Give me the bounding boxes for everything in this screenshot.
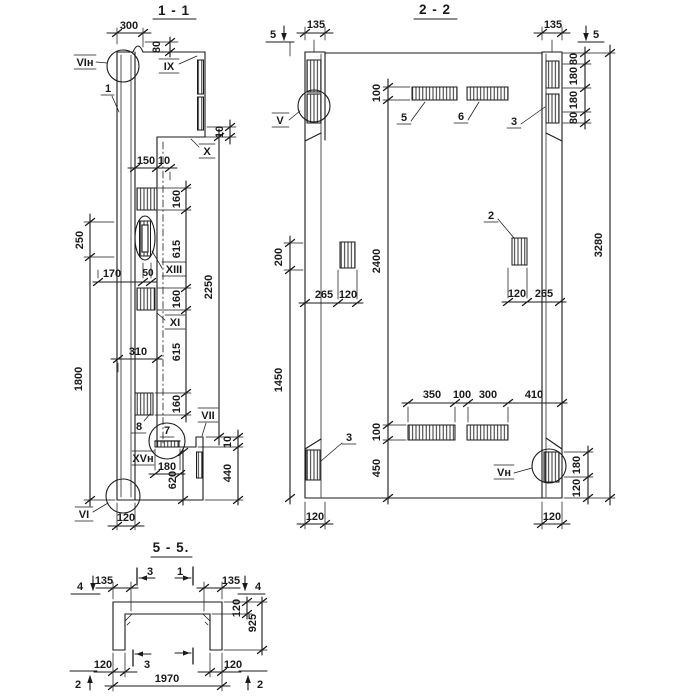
dim-text: 160: [171, 395, 183, 413]
embedded-plate: [137, 188, 157, 210]
dim-135-right: 135: [534, 19, 570, 40]
callout-3-bottom: 3: [321, 432, 356, 461]
cut-marker-text: 3: [147, 566, 153, 578]
dim-text: 135: [307, 19, 325, 31]
detail-label-v: V: [272, 111, 300, 127]
embedded-plate: [197, 452, 203, 478]
dim-text: 300: [120, 20, 138, 32]
cut-marker-2-right: 2: [239, 671, 267, 691]
dim-300: 300: [107, 20, 151, 47]
dim-text: 250: [74, 231, 86, 249]
cut-marker-text: 2: [75, 679, 81, 691]
callout-3-top: 3: [507, 107, 545, 128]
section-2-2-title: 2 - 2: [414, 2, 457, 19]
embedded-plate: [512, 238, 527, 265]
dim-135-top-left: 135: [95, 575, 138, 611]
cut-marker-text: 5: [593, 29, 599, 41]
embedded-plate: [306, 450, 320, 480]
callout-6: 6: [454, 102, 479, 123]
dim-text: 120: [94, 659, 112, 671]
cut-marker-3-bottom: 3: [133, 650, 151, 671]
detail-label-vii-text: VII: [201, 410, 214, 422]
detail-label-ix: IX: [159, 56, 197, 73]
detail-label-x: X: [191, 139, 215, 158]
embedded-angle: [155, 441, 179, 447]
embedded-plate: [467, 87, 508, 100]
dim-120-bottom: 120: [108, 503, 144, 530]
dim-text: 615: [171, 240, 183, 258]
dim-text: 440: [222, 464, 234, 482]
dim-text: 620: [167, 471, 179, 489]
embedded-plate: [412, 87, 457, 100]
dim-text: 3280: [593, 233, 605, 257]
dim-120-bottom-right: 120: [198, 653, 242, 677]
dim-text: 160: [171, 190, 183, 208]
embedded-plate: [544, 452, 559, 482]
dim-text: 135: [544, 19, 562, 31]
dim-text: 120: [339, 289, 357, 301]
callout-5-text: 5: [401, 112, 407, 124]
dim-620: 620: [167, 449, 188, 506]
dim-text: 180: [571, 456, 583, 474]
dim-250-1800: 250 1800: [73, 214, 115, 506]
channel-cross-section: [113, 602, 222, 650]
dim-text: 135: [95, 575, 113, 587]
slot-inner: [142, 225, 148, 252]
dim-200-1450: 200 1450: [273, 236, 303, 504]
dim-text: 615: [171, 343, 183, 361]
section-1-1-title-text: 1 - 1: [158, 3, 190, 18]
callout-7-text: 7: [164, 425, 170, 437]
embedded-plate: [546, 61, 559, 88]
dim-135-left: 135: [297, 19, 333, 40]
detail-label-ix-text: IX: [164, 61, 175, 73]
callout-6-text: 6: [458, 111, 464, 123]
cut-marker-text: 1: [177, 566, 183, 578]
dim-text: 120: [571, 479, 583, 497]
callout-2-text: 2: [488, 210, 494, 222]
dim-text: 135: [222, 575, 240, 587]
callout-1-text: 1: [105, 83, 111, 95]
dim-1970: 1970: [105, 673, 230, 691]
dim-text: 2400: [371, 249, 383, 273]
section-5-5: 5 - 5. 4 4 3 1 3 2: [70, 540, 267, 691]
dim-text: 180: [568, 91, 580, 109]
dim-text: 100: [371, 84, 383, 102]
cut-marker-3-top: 3: [137, 566, 155, 585]
dim-text: 120: [117, 512, 135, 524]
dim-chain-right-top: 80 180 180 80: [563, 47, 591, 129]
detail-label-vin-text: VIн: [76, 57, 93, 69]
dim-310: 310: [111, 346, 162, 372]
dim-120-bottom-right: 120: [534, 502, 570, 529]
dim-170-50: 170 50: [93, 263, 157, 286]
embedded-plate: [546, 94, 559, 123]
embedded-plate: [340, 242, 355, 268]
detail-circle-vin: [107, 50, 139, 82]
dim-chain-right-inner: 160 615 160 615 160: [155, 181, 191, 422]
rib-elevation-outline: [117, 46, 205, 500]
dim-text: 170: [103, 268, 121, 280]
detail-label-xvn-text: XVн: [132, 453, 153, 465]
embedded-plate: [198, 60, 204, 94]
callout-1: 1: [101, 83, 119, 112]
technical-drawing: 1 - 1: [0, 0, 700, 700]
detail-label-vii: VII: [198, 408, 218, 436]
dim-text: 1970: [155, 673, 179, 685]
dim-text: 120: [543, 511, 561, 523]
dim-265-120-left: 265 120: [299, 270, 363, 307]
dim-text: 1450: [273, 368, 285, 392]
embedded-plate: [467, 425, 508, 440]
dim-text: 265: [535, 288, 553, 300]
dim-120-bottom-left: 120: [94, 653, 137, 677]
detail-label-x-text: X: [203, 146, 211, 158]
detail-label-xi: XI: [157, 313, 185, 329]
cut-marker-text: 4: [77, 581, 84, 593]
blueprint-page: 1 - 1: [0, 0, 700, 700]
dim-text: 120: [306, 511, 324, 523]
dim-text: 10: [158, 155, 170, 167]
detail-label-vn-text: Vн: [497, 467, 511, 479]
dim-text: 200: [273, 248, 285, 266]
callout-5: 5: [397, 102, 425, 124]
section-5-5-title-text: 5 - 5.: [153, 540, 190, 555]
callout-8-text: 8: [136, 421, 142, 433]
cut-marker-5-left: 5: [266, 26, 294, 56]
embedded-plate: [135, 393, 153, 415]
detail-label-vi-text: VI: [79, 509, 89, 521]
dim-chain-center: 100 2400 100 450: [371, 79, 410, 504]
callout-2: 2: [484, 210, 514, 238]
dim-80: 80: [145, 37, 178, 57]
cut-marker-bottom-right-flag: [175, 648, 193, 664]
section-2-2-title-text: 2 - 2: [419, 2, 451, 17]
cut-marker-text: 4: [255, 581, 262, 593]
dim-text: 50: [142, 268, 154, 279]
dim-text: 410: [525, 389, 543, 401]
cut-marker-text: 3: [144, 659, 150, 671]
detail-label-xi-text: XI: [170, 317, 180, 329]
cut-marker-4-right: 4: [238, 576, 265, 594]
dim-180-120-right-bottom: 180 120: [564, 446, 593, 504]
dim-text: 925: [247, 614, 259, 632]
dim-text: 180: [568, 67, 580, 85]
detail-label-xvn: XVн: [132, 451, 154, 465]
dim-text: 2250: [203, 275, 215, 299]
section-1-1-title: 1 - 1: [153, 3, 196, 19]
dim-text: 150: [137, 155, 155, 167]
detail-label-v-text: V: [276, 115, 284, 127]
embedded-plates-2-2: [306, 60, 559, 482]
dim-text: 100: [371, 423, 383, 441]
detail-label-vi: VI: [75, 503, 108, 521]
callout-3-text: 3: [346, 432, 352, 444]
dim-120-265-right: 120 265: [502, 268, 566, 306]
dim-text: 350: [423, 389, 441, 401]
callout-3-text: 3: [511, 116, 517, 128]
dim-text: 120: [231, 599, 243, 617]
section-1-1: 1 - 1: [73, 3, 243, 530]
dim-text: 100: [453, 389, 471, 401]
lifting-loop: [133, 46, 143, 52]
dim-text: 265: [315, 289, 333, 301]
dim-10-top-right: 10: [205, 120, 236, 144]
dim-text: 80: [568, 112, 580, 124]
dim-text: 450: [371, 459, 383, 477]
callout-7: 7: [160, 425, 174, 437]
embedded-plate: [408, 425, 455, 440]
dim-10-440: 10 440: [198, 430, 243, 505]
detail-label-xiii-text: XIII: [166, 264, 183, 276]
dim-text: 120: [224, 659, 242, 671]
dim-text: 80: [151, 41, 163, 53]
dim-text: 160: [171, 290, 183, 308]
section-2-2: 2 - 2: [266, 2, 615, 529]
embedded-plate: [137, 288, 155, 310]
dim-text: 1800: [73, 367, 85, 391]
cut-marker-1-top: 1: [175, 566, 193, 585]
cut-marker-2-left: 2: [70, 671, 97, 691]
callout-8: 8: [131, 414, 150, 433]
dim-text: 300: [479, 389, 497, 401]
cut-marker-text: 2: [257, 679, 263, 691]
cut-marker-text: 5: [270, 29, 276, 41]
dim-text: 80: [568, 53, 580, 65]
embedded-plate: [307, 94, 321, 123]
detail-label-vn: Vн: [494, 465, 532, 479]
dim-120-bottom-left: 120: [297, 502, 333, 529]
dim-text: 10: [222, 436, 234, 448]
section-5-5-title: 5 - 5.: [151, 540, 192, 557]
cut-marker-5-right: 5: [578, 26, 604, 42]
detail-label-vin: VIн: [74, 55, 107, 69]
embedded-plate: [198, 97, 204, 130]
dim-text: 120: [508, 288, 526, 300]
embedded-plate: [307, 60, 321, 92]
dim-text: 310: [129, 346, 147, 358]
dim-2250: 2250: [203, 129, 224, 445]
